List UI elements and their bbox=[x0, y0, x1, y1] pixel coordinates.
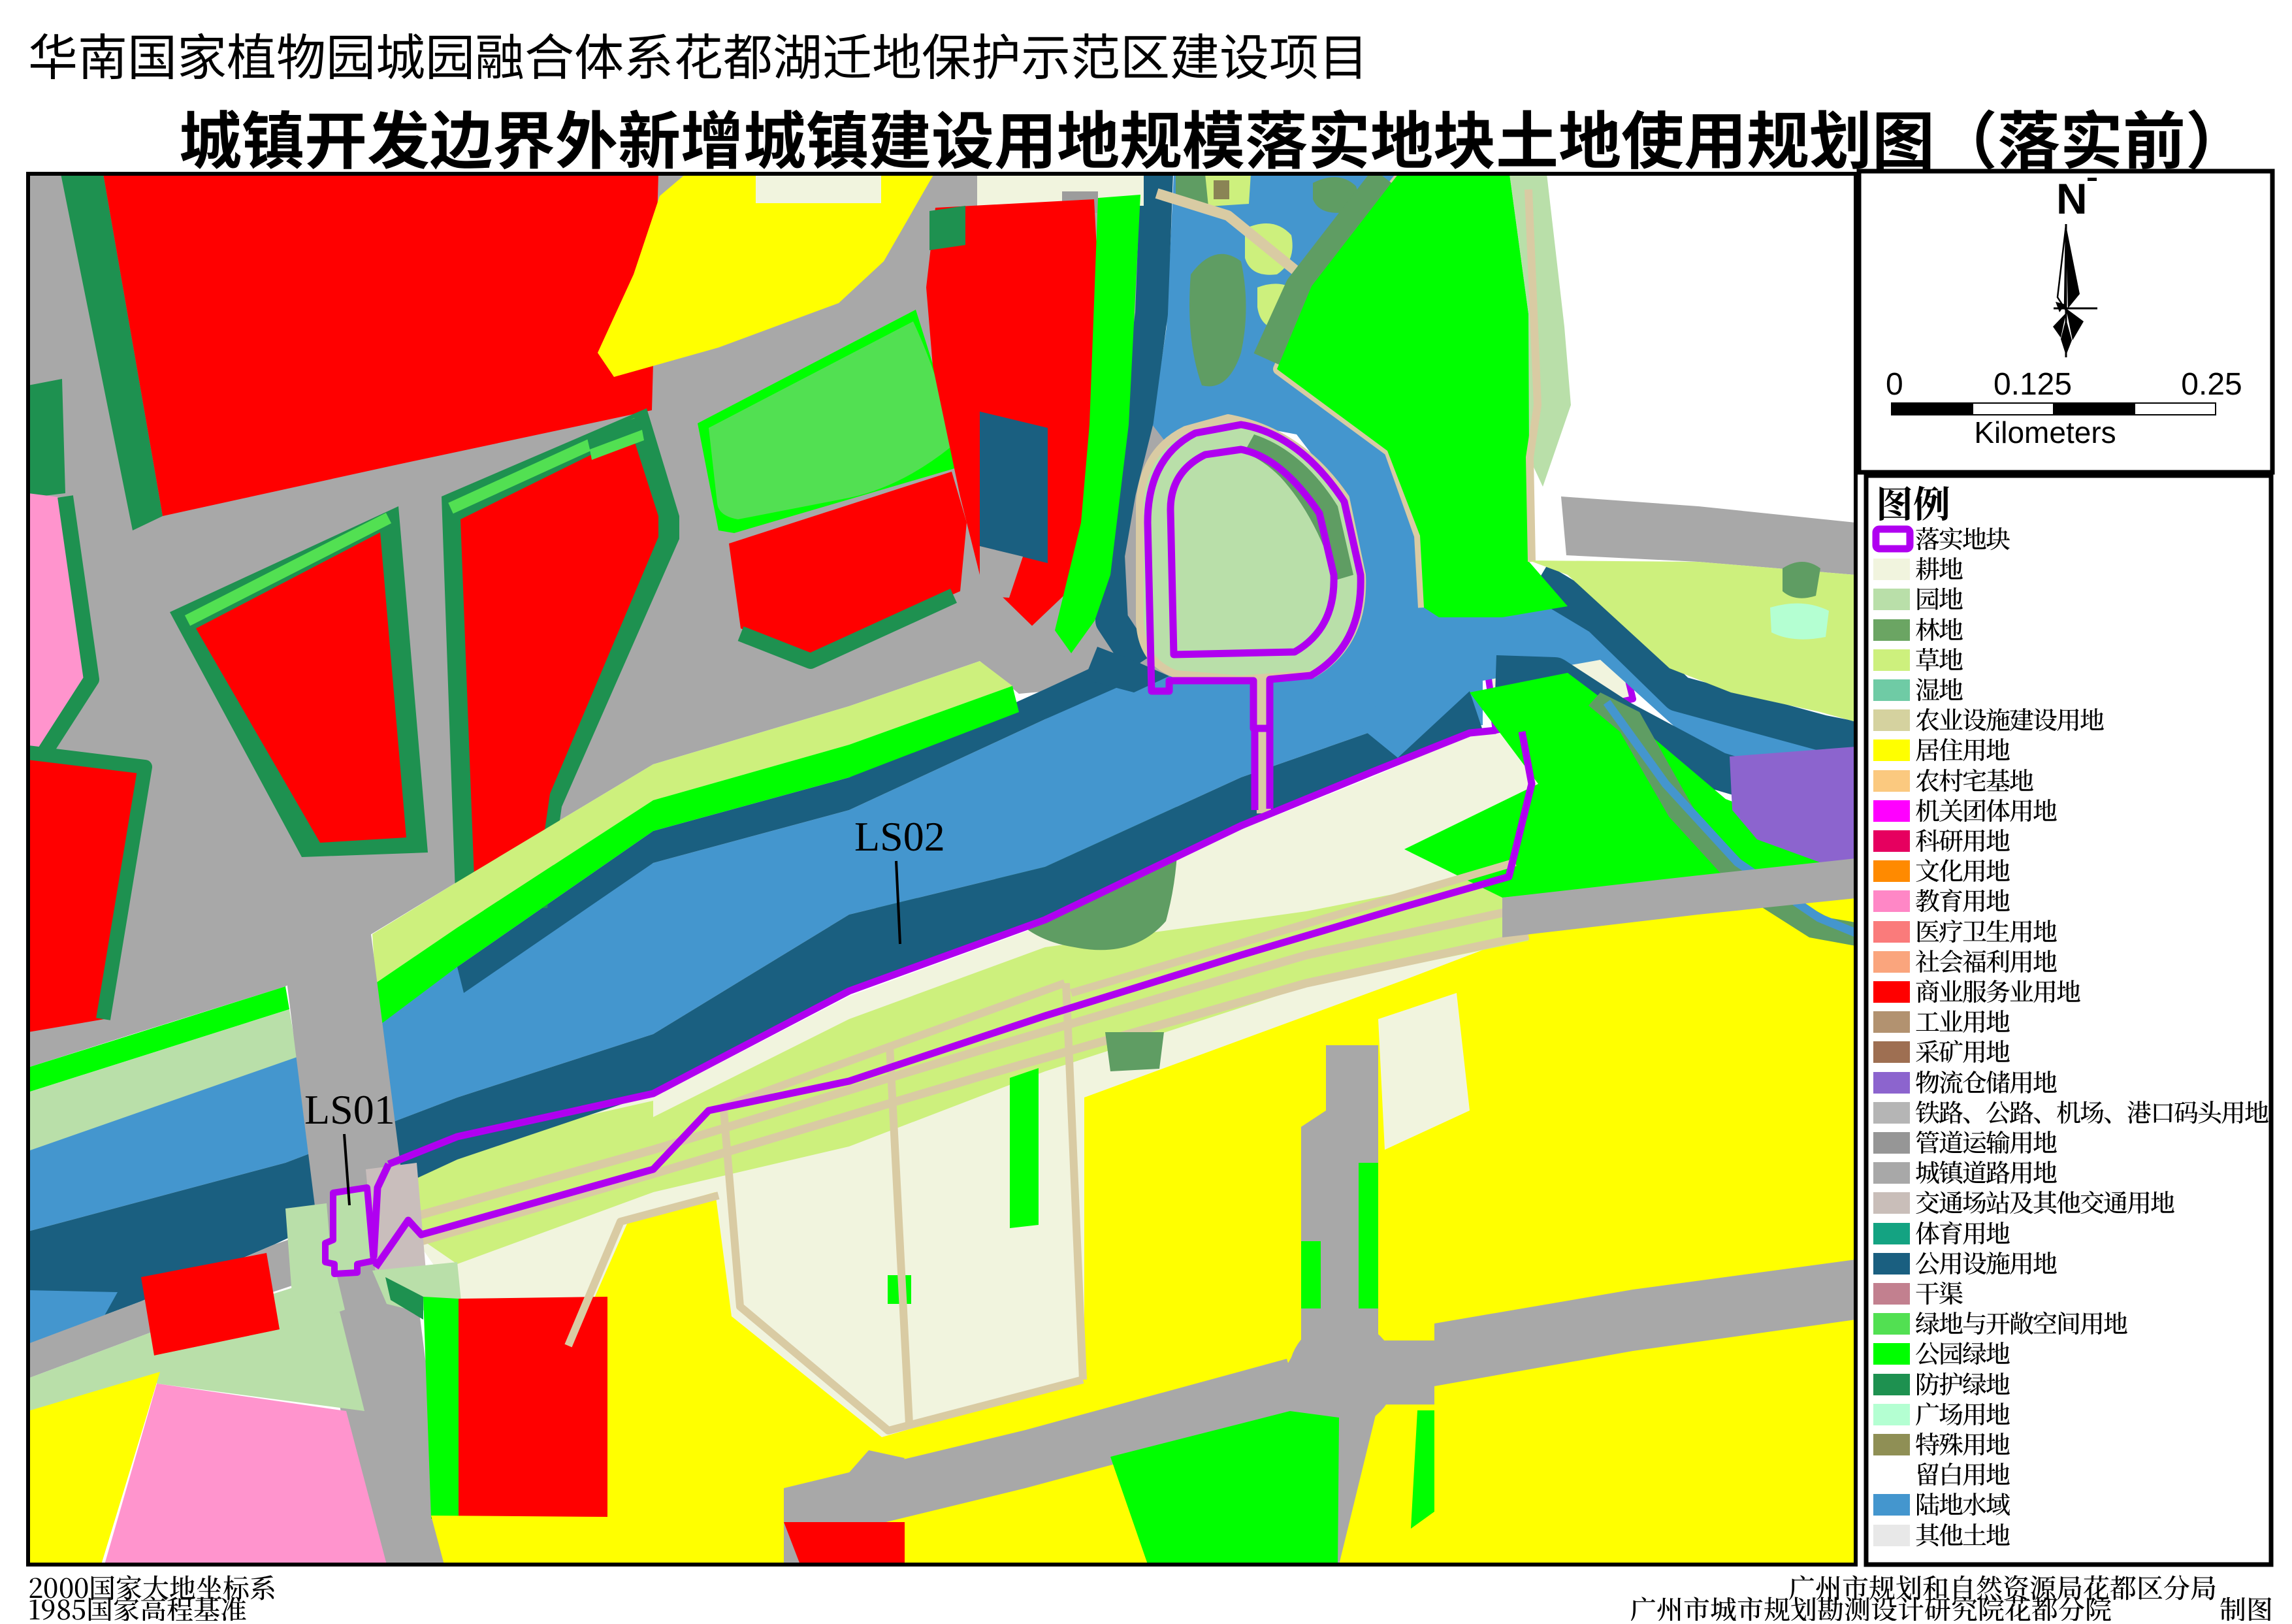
svg-text:0.25: 0.25 bbox=[2181, 367, 2242, 402]
svg-text:LS02: LS02 bbox=[854, 813, 945, 860]
svg-text:Kilometers: Kilometers bbox=[1974, 415, 2116, 449]
svg-text:LS01: LS01 bbox=[304, 1086, 395, 1133]
svg-text:0.125: 0.125 bbox=[1993, 367, 2072, 402]
svg-text:N: N bbox=[2056, 174, 2088, 223]
svg-text:0: 0 bbox=[1886, 367, 1903, 402]
